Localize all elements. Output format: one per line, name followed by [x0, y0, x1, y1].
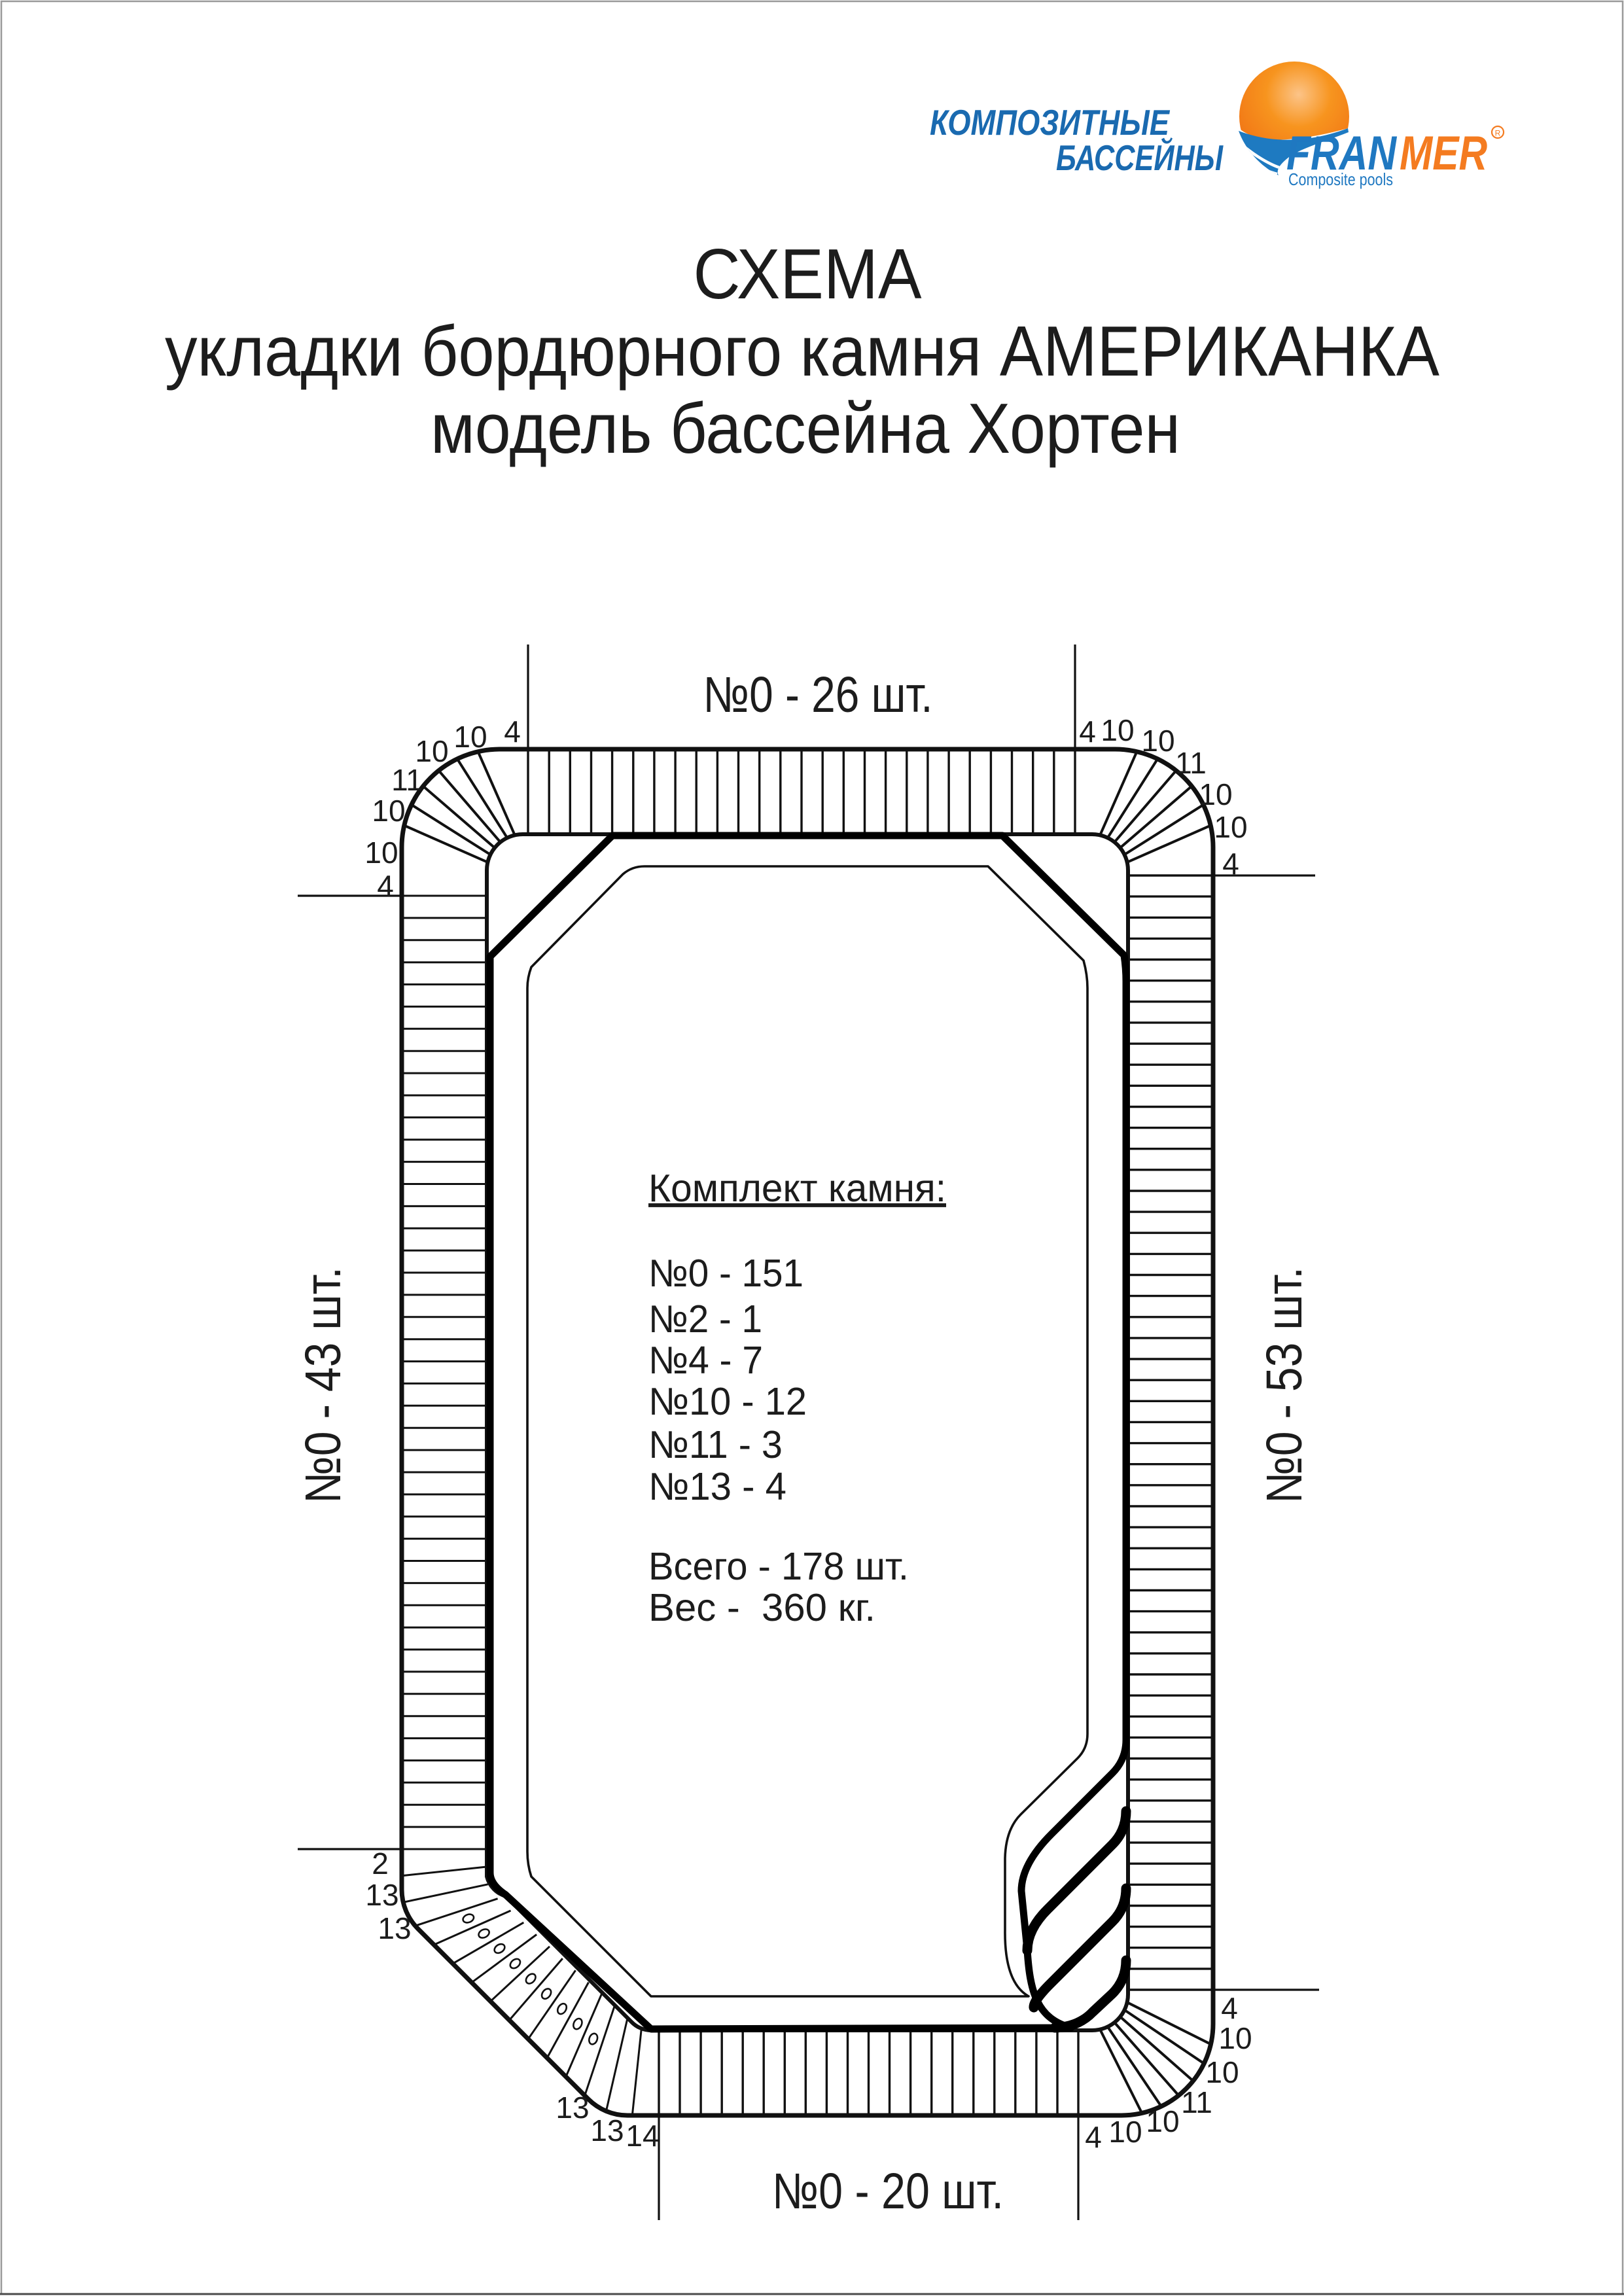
svg-text:4: 4: [377, 869, 394, 903]
svg-text:10: 10: [372, 794, 405, 828]
svg-text:10: 10: [1218, 2021, 1252, 2055]
svg-text:Вес - 360 кг.: Вес - 360 кг.: [648, 1586, 875, 1629]
svg-text:№0 - 20 шт.: №0 - 20 шт.: [772, 2163, 1004, 2219]
svg-text:№13 - 4: №13 - 4: [648, 1465, 786, 1508]
svg-text:13: 13: [590, 2113, 624, 2147]
svg-text:4: 4: [1222, 847, 1239, 881]
svg-text:R: R: [1495, 129, 1501, 138]
svg-text:№0 - 53 шт.: №0 - 53 шт.: [1256, 1267, 1313, 1504]
svg-text:4: 4: [1085, 2120, 1102, 2154]
svg-text:10: 10: [453, 720, 487, 754]
svg-text:10: 10: [1214, 810, 1247, 844]
svg-text:Комплект камня:: Комплект камня:: [648, 1167, 946, 1210]
svg-text:№0 - 26 шт.: №0 - 26 шт.: [703, 667, 933, 723]
svg-text:10: 10: [1108, 2115, 1142, 2149]
svg-text:Composite pools: Composite pools: [1288, 169, 1393, 189]
svg-text:2: 2: [372, 1846, 389, 1881]
svg-text:4: 4: [1221, 1991, 1238, 2025]
svg-text:13: 13: [365, 1878, 398, 1912]
svg-text:№2 - 1: №2 - 1: [648, 1298, 762, 1341]
svg-text:11: 11: [391, 763, 423, 797]
svg-text:модель бассейна Хортен: модель бассейна Хортен: [431, 389, 1180, 468]
svg-text:10: 10: [1199, 777, 1232, 811]
svg-text:укладки бордюрного камня АМЕРИ: укладки бордюрного камня АМЕРИКАНКА: [165, 311, 1439, 391]
svg-text:11: 11: [1175, 746, 1207, 780]
svg-text:10: 10: [1146, 2104, 1179, 2138]
svg-text:№4 - 7: №4 - 7: [648, 1339, 763, 1382]
svg-text:4: 4: [1079, 715, 1096, 749]
svg-text:№10 - 12: №10 - 12: [648, 1380, 807, 1423]
svg-text:MER: MER: [1400, 127, 1487, 180]
svg-text:10: 10: [364, 836, 398, 870]
svg-text:БАССЕЙНЫ: БАССЕЙНЫ: [1056, 137, 1224, 178]
svg-text:Всего - 178 шт.: Всего - 178 шт.: [648, 1545, 909, 1588]
svg-text:№0 - 43 шт.: №0 - 43 шт.: [295, 1267, 351, 1504]
svg-text:13: 13: [556, 2091, 589, 2125]
svg-text:4: 4: [504, 715, 521, 749]
svg-text:№0 - 151: №0 - 151: [648, 1252, 803, 1295]
svg-text:11: 11: [1181, 2085, 1212, 2119]
svg-text:10: 10: [1101, 713, 1134, 747]
svg-text:СХЕМА: СХЕМА: [694, 234, 922, 314]
svg-text:№11 - 3: №11 - 3: [648, 1423, 783, 1466]
svg-text:10: 10: [1205, 2055, 1239, 2089]
svg-text:10: 10: [1141, 724, 1174, 758]
svg-text:13: 13: [378, 1911, 411, 1945]
svg-text:КОМПОЗИТНЫЕ: КОМПОЗИТНЫЕ: [930, 102, 1171, 143]
svg-text:14: 14: [626, 2119, 659, 2153]
